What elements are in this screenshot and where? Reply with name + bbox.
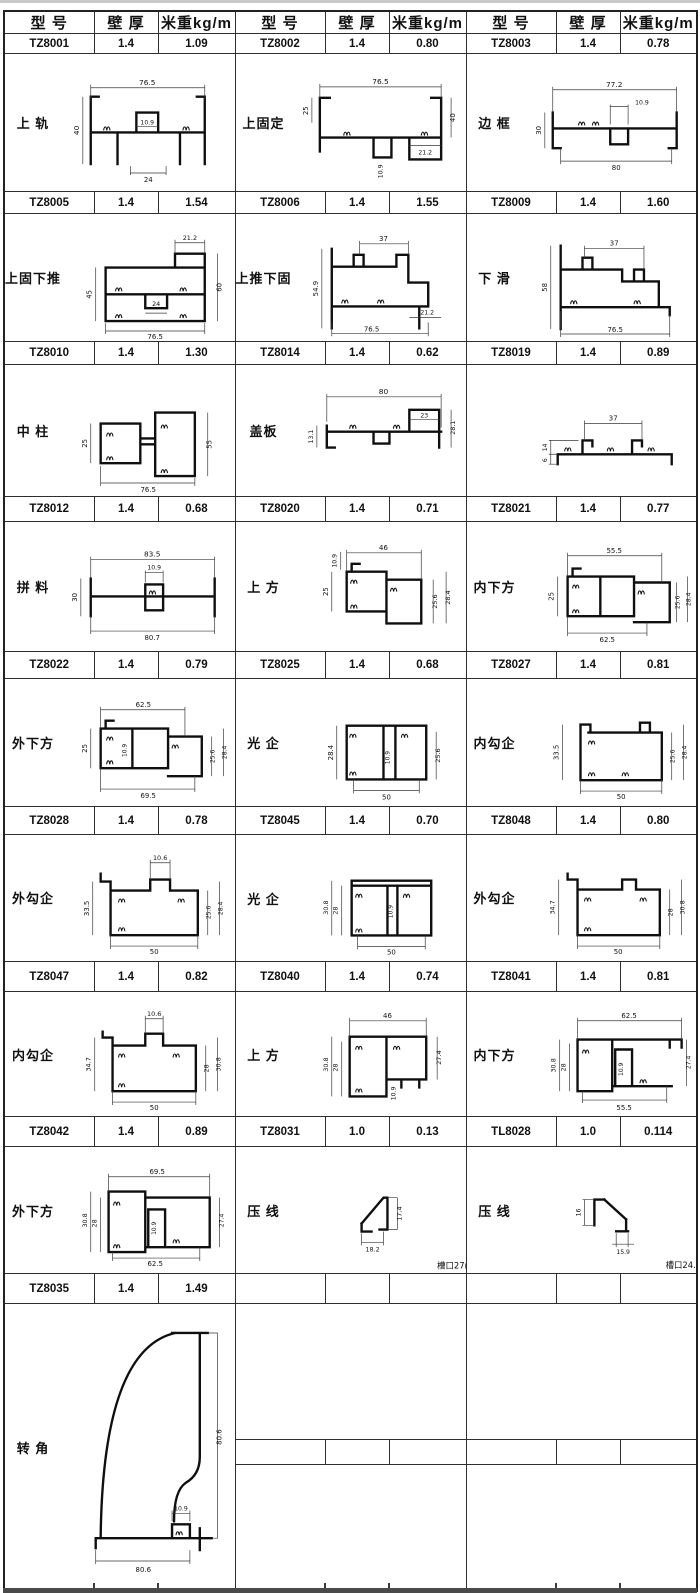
dim-label: 54.9 xyxy=(311,281,319,296)
dim-label: 25.6 xyxy=(669,749,676,763)
profile-drawing: 10.6 33.5 25.6 28.4 50 xyxy=(61,836,235,960)
drawing-row: 上 轨 76.5 40 10.9 24 上固定 76.5 25 xyxy=(4,54,697,192)
dim-label: 76.5 xyxy=(607,326,622,334)
profile-name: 上固定 xyxy=(236,113,292,132)
dim-label: 28.4 xyxy=(444,591,452,605)
dim-label: 37 xyxy=(609,239,618,247)
dim-label: 10.9 xyxy=(140,119,154,126)
profile-name: 内勾企 xyxy=(467,733,523,752)
dim-label: 76.5 xyxy=(363,326,378,334)
profile-name: 上推下固 xyxy=(236,268,292,287)
dim-label: 14 xyxy=(541,443,548,451)
meter-weight-value: 0.78 xyxy=(158,807,235,835)
drawing-row: 拼 料 83.5 10.9 30 80.7 上 方 46 10. xyxy=(4,522,697,652)
wall-thickness-value: 1.4 xyxy=(325,652,389,679)
model-number: TZ8025 xyxy=(235,652,325,679)
profile-name: 内勾企 xyxy=(5,1045,61,1064)
profile-name: 压 线 xyxy=(467,1201,523,1220)
meter-weight-value: 0.77 xyxy=(620,497,697,522)
meter-weight-value: 0.80 xyxy=(620,807,697,835)
dim-label: 24 xyxy=(152,300,160,308)
wall-thickness-value: 1.4 xyxy=(325,192,389,214)
profile-drawing-cell: 内勾企 33.5 25.6 28.4 50 xyxy=(466,679,697,807)
profile-drawing: 33.5 25.6 28.4 50 xyxy=(523,681,697,805)
meter-weight-value: 1.30 xyxy=(158,342,235,365)
profile-drawing-cell: 内勾企 10.6 34.7 28 30.8 50 xyxy=(4,992,235,1117)
wall-thickness-value: 1.4 xyxy=(325,34,389,54)
wall-thickness-value: 1.4 xyxy=(94,1117,158,1147)
profile-name: 压 线 xyxy=(236,1201,292,1220)
dim-label: 10.9 xyxy=(384,751,391,764)
dim-label: 80 xyxy=(378,387,388,396)
model-number: TZ8027 xyxy=(466,652,556,679)
model-row: TZ8010 1.4 1.30 TZ8014 1.4 0.62 TZ8019 1… xyxy=(4,342,697,365)
model-number: TZ8012 xyxy=(4,497,94,522)
meter-weight-value: 0.82 xyxy=(158,962,235,992)
empty-cell xyxy=(556,1274,620,1304)
profile-drawing-cell: 转 角 80.6 10.9 80.6 xyxy=(4,1304,235,1592)
model-number: TZ8001 xyxy=(4,34,94,54)
profile-drawing-cell: 外勾企 10.6 33.5 25.6 28.4 50 xyxy=(4,835,235,962)
dim-label: 28 xyxy=(666,908,674,916)
dim-label: 50 xyxy=(382,794,391,802)
profile-name: 上 方 xyxy=(236,1045,292,1064)
header-weight: 米重kg/m xyxy=(389,11,466,34)
profile-drawing: 37 14 6 xyxy=(523,369,697,493)
column-tick xyxy=(388,1583,390,1588)
top-divider xyxy=(0,0,700,3)
model-number: TZ8045 xyxy=(235,807,325,835)
meter-weight-value: 0.81 xyxy=(620,962,697,992)
meter-weight-value: 0.13 xyxy=(389,1117,466,1147)
wall-thickness-value: 1.4 xyxy=(556,962,620,992)
meter-weight-value: 0.79 xyxy=(158,652,235,679)
dim-label: 55.5 xyxy=(606,546,621,554)
column-tick xyxy=(555,1583,557,1588)
meter-weight-value: 1.60 xyxy=(620,192,697,214)
dim-label: 30 xyxy=(71,592,79,601)
header-model: 型 号 xyxy=(4,11,94,34)
dim-label: 45 xyxy=(86,289,94,298)
dim-label: 40 xyxy=(72,125,81,135)
profile-name: 内下方 xyxy=(467,1045,523,1064)
model-row: TZ8022 1.4 0.79 TZ8025 1.4 0.68 TZ8027 1… xyxy=(4,652,697,679)
profile-drawing-cell: 边 框 77.2 10.9 30 80 xyxy=(466,54,697,192)
model-number: TZ8020 xyxy=(235,497,325,522)
drawing-row: 外勾企 10.6 33.5 25.6 28.4 50 光 企 3 xyxy=(4,835,697,962)
header-thickness: 壁 厚 xyxy=(94,11,158,34)
dim-label: 28 xyxy=(91,1220,99,1228)
profile-drawing: 80.6 10.9 80.6 xyxy=(61,1304,235,1590)
dim-label: 28.4 xyxy=(222,745,229,759)
dim-label: 28 xyxy=(331,1063,339,1071)
empty-cell xyxy=(235,1439,325,1464)
dim-label: 37 xyxy=(379,235,388,243)
profile-drawing-cell: 下 滑 37 58 76.5 xyxy=(466,214,697,342)
profile-name: 外勾企 xyxy=(467,888,523,907)
profile-drawing: 16 15.9 槽口24.4mm xyxy=(523,1148,697,1272)
model-number: TZ8002 xyxy=(235,34,325,54)
dim-label: 55.5 xyxy=(616,1104,631,1112)
profile-drawing: 34.7 28 30.8 50 xyxy=(523,836,697,960)
dim-label: 13.1 xyxy=(307,430,314,444)
profile-drawing-cell: 内下方 55.5 25 25.6 28.4 62.5 xyxy=(466,522,697,652)
dim-label: 17.4 xyxy=(395,1207,403,1221)
profile-drawing: 37 54.9 21.2 76.5 xyxy=(292,215,466,339)
dim-label: 28.4 xyxy=(326,745,334,761)
dim-label: 25 xyxy=(81,438,89,447)
wall-thickness-value: 1.4 xyxy=(325,497,389,522)
dim-label: 6 xyxy=(541,458,548,462)
dim-label: 62.5 xyxy=(621,1012,636,1020)
model-number: TZ8040 xyxy=(235,962,325,992)
profile-drawing: 76.5 25 40 21.2 10.9 xyxy=(292,60,466,184)
dim-label: 28.4 xyxy=(685,592,692,606)
dim-label: 16 xyxy=(574,1209,582,1217)
dim-label: 23 xyxy=(420,413,428,420)
model-number: TZ8031 xyxy=(235,1117,325,1147)
meter-weight-value: 0.62 xyxy=(389,342,466,365)
profile-drawing-cell: 内下方 62.5 30.8 28 10.9 27.4 55.5 xyxy=(466,992,697,1117)
dim-label: 28.1 xyxy=(449,421,457,435)
empty-cell xyxy=(620,1274,697,1304)
bottom-divider xyxy=(3,1588,697,1593)
dim-label: 62.5 xyxy=(136,700,151,708)
profile-name: 转 角 xyxy=(5,1438,61,1457)
header-thickness: 壁 厚 xyxy=(325,11,389,34)
dim-label: 80.6 xyxy=(136,1566,151,1574)
empty-cell xyxy=(325,1439,389,1464)
dim-label: 50 xyxy=(616,793,625,801)
profile-drawing-cell: 外勾企 34.7 28 30.8 50 xyxy=(466,835,697,962)
wall-thickness-value: 1.4 xyxy=(325,962,389,992)
profile-drawing-cell: 光 企 30.8 28 10.9 50 xyxy=(235,835,466,962)
groove-note: 槽口27mm xyxy=(437,1260,466,1270)
model-number: TZ8028 xyxy=(4,807,94,835)
dim-label: 30.8 xyxy=(321,1057,329,1071)
profile-name: 中 柱 xyxy=(5,421,61,440)
dim-label: 10.9 xyxy=(390,1086,397,1100)
meter-weight-value: 0.80 xyxy=(389,34,466,54)
wall-thickness-value: 1.4 xyxy=(556,497,620,522)
profile-drawing-cell: 盖板 80 23 28.1 13.1 xyxy=(235,365,466,497)
meter-weight-value: 0.78 xyxy=(620,34,697,54)
dim-label: 27.4 xyxy=(685,1056,692,1070)
dim-label: 76.5 xyxy=(147,332,162,339)
model-number: TZ8005 xyxy=(4,192,94,214)
dim-label: 21.2 xyxy=(420,310,434,317)
header-model: 型 号 xyxy=(466,11,556,34)
dim-label: 10.9 xyxy=(387,905,394,918)
model-row: TZ8005 1.4 1.54 TZ8006 1.4 1.55 TZ8009 1… xyxy=(4,192,697,214)
dim-label: 10.9 xyxy=(151,1222,158,1235)
profile-drawing: 25 55 76.5 xyxy=(61,369,235,493)
wall-thickness-value: 1.4 xyxy=(94,652,158,679)
model-row: TZ8035 1.4 1.49 xyxy=(4,1274,697,1304)
profile-drawing-cell: 上固定 76.5 25 40 21.2 10.9 xyxy=(235,54,466,192)
wall-thickness-value: 1.4 xyxy=(556,34,620,54)
profile-drawing-cell: 上固下推 21.2 45 60 24 76.5 xyxy=(4,214,235,342)
dim-label: 27.4 xyxy=(435,1050,443,1064)
dim-label: 10.9 xyxy=(174,1506,188,1513)
profile-drawing: 55.5 25 25.6 28.4 62.5 xyxy=(523,525,697,649)
profile-drawing: 62.5 25 10.9 25.6 28.4 69.5 xyxy=(61,681,235,805)
dim-label: 40 xyxy=(449,114,457,123)
column-tick xyxy=(324,1583,326,1588)
dim-label: 33.5 xyxy=(83,901,91,916)
profile-drawing-cell: 压 线 17.4 18.2 槽口27mm xyxy=(235,1147,466,1274)
profile-name: 光 企 xyxy=(236,733,292,752)
profile-drawing: 76.5 40 10.9 24 xyxy=(61,61,235,185)
empty-cell xyxy=(389,1439,466,1464)
dim-label: 25.6 xyxy=(431,595,439,609)
dim-label: 18.2 xyxy=(365,1246,379,1254)
meter-weight-value: 0.89 xyxy=(620,342,697,365)
model-number: TZ8009 xyxy=(466,192,556,214)
model-number: TZ8019 xyxy=(466,342,556,365)
dim-label: 46 xyxy=(383,1012,392,1020)
profile-drawing-cell: 37 14 6 xyxy=(466,365,697,497)
profile-name: 拼 料 xyxy=(5,577,61,596)
profile-drawing: 62.5 30.8 28 10.9 27.4 55.5 xyxy=(523,992,697,1116)
dim-label: 37 xyxy=(608,414,617,422)
model-number: TZ8041 xyxy=(466,962,556,992)
header-weight: 米重kg/m xyxy=(620,11,697,34)
empty-drawing-cell xyxy=(235,1465,466,1592)
dim-label: 28.4 xyxy=(681,745,688,759)
dim-label: 21.2 xyxy=(183,233,197,241)
model-row: TZ8001 1.4 1.09 TZ8002 1.4 0.80 TZ8003 1… xyxy=(4,34,697,54)
meter-weight-value: 1.49 xyxy=(158,1274,235,1304)
column-tick xyxy=(619,1583,621,1588)
wall-thickness-value: 1.4 xyxy=(94,497,158,522)
header-model: 型 号 xyxy=(235,11,325,34)
empty-cell xyxy=(235,1274,325,1304)
dim-label: 80 xyxy=(611,164,620,172)
model-row: TZ8047 1.4 0.82 TZ8040 1.4 0.74 TZ8041 1… xyxy=(4,962,697,992)
dim-label: 28 xyxy=(559,1063,567,1071)
profile-drawing: 83.5 10.9 30 80.7 xyxy=(61,525,235,649)
column-tick xyxy=(157,1583,159,1588)
profile-drawing: 37 58 76.5 xyxy=(523,216,697,340)
dim-label: 58 xyxy=(540,283,548,292)
profile-drawing: 46 10.9 25 25.6 28.4 xyxy=(292,524,466,648)
dim-label: 76.5 xyxy=(139,77,156,86)
dim-label: 28.4 xyxy=(218,901,225,915)
dim-label: 77.2 xyxy=(605,79,622,88)
profile-drawing: 46 30.8 28 27.4 10.9 xyxy=(292,992,466,1116)
wall-thickness-value: 1.4 xyxy=(94,807,158,835)
dim-label: 80.6 xyxy=(216,1430,224,1445)
empty-cell xyxy=(556,1439,620,1464)
dim-label: 34.7 xyxy=(85,1057,93,1071)
header-row: 型 号 壁 厚 米重kg/m 型 号 壁 厚 米重kg/m 型 号 壁 厚 米重… xyxy=(4,11,697,34)
meter-weight-value: 1.09 xyxy=(158,34,235,54)
profile-name: 盖板 xyxy=(236,421,292,440)
wall-thickness-value: 1.4 xyxy=(325,342,389,365)
wall-thickness-value: 1.4 xyxy=(556,652,620,679)
meter-weight-value: 1.55 xyxy=(389,192,466,214)
profile-name: 内下方 xyxy=(467,577,523,596)
profile-drawing-cell: 上 方 46 10.9 25 25.6 28.4 xyxy=(235,522,466,652)
dim-label: 10.6 xyxy=(147,1010,161,1018)
profile-drawing-cell: 外下方 69.5 30.8 28 10.9 27.4 62.5 xyxy=(4,1147,235,1274)
profile-name: 下 滑 xyxy=(467,268,523,287)
drawing-row: 上固下推 21.2 45 60 24 76.5 上推下固 37 xyxy=(4,214,697,342)
wall-thickness-value: 1.4 xyxy=(556,342,620,365)
model-number: TZ8003 xyxy=(466,34,556,54)
dim-label: 30.8 xyxy=(81,1214,89,1228)
model-row: TZ8028 1.4 0.78 TZ8045 1.4 0.70 TZ8048 1… xyxy=(4,807,697,835)
wall-thickness-value: 1.0 xyxy=(325,1117,389,1147)
profile-name: 边 框 xyxy=(467,113,523,132)
empty-cell xyxy=(620,1439,697,1464)
profile-drawing: 21.2 45 60 24 76.5 xyxy=(61,216,235,340)
model-number: TZ8035 xyxy=(4,1274,94,1304)
header-thickness: 壁 厚 xyxy=(556,11,620,34)
empty-cell xyxy=(325,1274,389,1304)
empty-drawing-cell xyxy=(235,1304,466,1440)
dim-label: 25.6 xyxy=(674,595,681,609)
dim-label: 25.6 xyxy=(434,749,442,763)
profile-drawing: 77.2 10.9 30 80 xyxy=(523,61,697,185)
drawing-row: 外下方 62.5 25 10.9 25.6 28.4 69.5 光 企 xyxy=(4,679,697,807)
model-number: TZ8021 xyxy=(466,497,556,522)
profile-name: 外下方 xyxy=(5,1201,61,1220)
catalog-page: 型 号 壁 厚 米重kg/m 型 号 壁 厚 米重kg/m 型 号 壁 厚 米重… xyxy=(0,0,700,1593)
groove-note: 槽口24.4mm xyxy=(665,1260,696,1270)
dim-label: 28 xyxy=(331,906,339,914)
model-number: TZ8006 xyxy=(235,192,325,214)
model-number: TZ8022 xyxy=(4,652,94,679)
dim-label: 76.5 xyxy=(141,485,156,492)
model-number: TL8028 xyxy=(466,1117,556,1147)
dim-label: 10.6 xyxy=(153,854,167,862)
wall-thickness-value: 1.4 xyxy=(94,962,158,992)
drawing-row: 内勾企 10.6 34.7 28 30.8 50 上 方 46 xyxy=(4,992,697,1117)
dim-label: 27.4 xyxy=(219,1214,226,1228)
dim-label: 30 xyxy=(534,126,542,135)
wall-thickness-value: 1.4 xyxy=(325,807,389,835)
column-tick xyxy=(93,1583,95,1588)
dim-label: 10.9 xyxy=(618,1063,625,1076)
dim-label: 30.8 xyxy=(678,900,686,914)
profile-name: 上 轨 xyxy=(5,113,61,132)
drawing-row: 外下方 69.5 30.8 28 10.9 27.4 62.5 压 线 xyxy=(4,1147,697,1274)
dim-label: 46 xyxy=(379,544,388,552)
profile-drawing: 80 23 28.1 13.1 xyxy=(292,368,466,492)
wall-thickness-value: 1.4 xyxy=(556,192,620,214)
meter-weight-value: 0.68 xyxy=(158,497,235,522)
dim-label: 80.7 xyxy=(145,634,160,642)
profile-name: 光 企 xyxy=(236,889,292,908)
profile-catalog-table: 型 号 壁 厚 米重kg/m 型 号 壁 厚 米重kg/m 型 号 壁 厚 米重… xyxy=(3,10,698,1592)
model-number: TZ8042 xyxy=(4,1117,94,1147)
model-number: TZ8047 xyxy=(4,962,94,992)
profile-drawing-cell: 外下方 62.5 25 10.9 25.6 28.4 69.5 xyxy=(4,679,235,807)
dim-label: 30.8 xyxy=(215,1057,223,1071)
dim-label: 24 xyxy=(144,175,153,183)
model-number: TZ8010 xyxy=(4,342,94,365)
profile-name: 外下方 xyxy=(5,733,61,752)
model-number: TZ8014 xyxy=(235,342,325,365)
dim-label: 50 xyxy=(613,948,622,956)
dim-label: 15.9 xyxy=(616,1249,630,1256)
dim-label: 10.9 xyxy=(147,564,161,571)
wall-thickness-value: 1.4 xyxy=(94,192,158,214)
profile-drawing-cell: 拼 料 83.5 10.9 30 80.7 xyxy=(4,522,235,652)
dim-label: 33.5 xyxy=(552,744,560,759)
dim-label: 25 xyxy=(321,588,329,597)
profile-drawing-cell: 上 方 46 30.8 28 27.4 10.9 xyxy=(235,992,466,1117)
meter-weight-value: 0.68 xyxy=(389,652,466,679)
dim-label: 55 xyxy=(206,439,214,448)
dim-label: 62.5 xyxy=(599,636,614,644)
wall-thickness-value: 1.4 xyxy=(556,807,620,835)
profile-drawing-cell: 中 柱 25 55 76.5 xyxy=(4,365,235,497)
profile-drawing: 28.4 10.9 25.6 50 xyxy=(292,680,466,804)
profile-drawing: 17.4 18.2 槽口27mm xyxy=(292,1148,466,1272)
profile-drawing-cell: 压 线 16 15.9 槽口24.4mm xyxy=(466,1147,697,1274)
profile-name: 上 方 xyxy=(236,577,292,596)
dim-label: 50 xyxy=(150,948,159,956)
dim-label: 69.5 xyxy=(141,792,156,800)
dim-label: 34.7 xyxy=(548,900,556,914)
meter-weight-value: 0.89 xyxy=(158,1117,235,1147)
dim-label: 10.9 xyxy=(377,165,384,179)
dim-label: 28 xyxy=(203,1064,211,1072)
profile-name: 上固下推 xyxy=(5,268,61,287)
empty-drawing-cell xyxy=(466,1304,697,1440)
dim-label: 25 xyxy=(301,107,309,116)
meter-weight-value: 0.81 xyxy=(620,652,697,679)
meter-weight-value: 1.54 xyxy=(158,192,235,214)
meter-weight-value: 0.114 xyxy=(620,1117,697,1147)
dim-label: 30.8 xyxy=(549,1058,557,1072)
dim-label: 25 xyxy=(81,744,89,753)
dim-label: 30.8 xyxy=(321,900,329,914)
empty-cell xyxy=(389,1274,466,1304)
dim-label: 25.6 xyxy=(210,749,217,763)
dim-label: 60 xyxy=(216,283,224,292)
profile-drawing: 10.6 34.7 28 30.8 50 xyxy=(61,992,235,1116)
profile-name: 外勾企 xyxy=(5,888,61,907)
model-row: TZ8012 1.4 0.68 TZ8020 1.4 0.71 TZ8021 1… xyxy=(4,497,697,522)
wall-thickness-value: 1.4 xyxy=(94,1274,158,1304)
dim-label: 10.9 xyxy=(635,99,649,106)
dim-label: 76.5 xyxy=(372,77,389,86)
profile-drawing: 69.5 30.8 28 10.9 27.4 62.5 xyxy=(61,1148,235,1272)
dim-label: 21.2 xyxy=(418,150,432,157)
empty-drawing-cell xyxy=(466,1465,697,1592)
profile-drawing-cell: 上 轨 76.5 40 10.9 24 xyxy=(4,54,235,192)
profile-drawing-cell: 上推下固 37 54.9 21.2 76.5 xyxy=(235,214,466,342)
empty-cell xyxy=(466,1274,556,1304)
dim-label: 50 xyxy=(150,1104,159,1112)
model-number: TZ8048 xyxy=(466,807,556,835)
dim-label: 25 xyxy=(547,592,555,601)
wall-thickness-value: 1.4 xyxy=(94,34,158,54)
dim-label: 62.5 xyxy=(147,1260,162,1268)
meter-weight-value: 0.71 xyxy=(389,497,466,522)
dim-label: 25.6 xyxy=(206,905,213,919)
empty-cell xyxy=(466,1439,556,1464)
profile-drawing-cell: 光 企 28.4 10.9 25.6 50 xyxy=(235,679,466,807)
drawing-row: 中 柱 25 55 76.5 盖板 80 23 28.1 xyxy=(4,365,697,497)
wall-thickness-value: 1.4 xyxy=(94,342,158,365)
dim-label: 10.9 xyxy=(121,743,128,756)
meter-weight-value: 0.74 xyxy=(389,962,466,992)
